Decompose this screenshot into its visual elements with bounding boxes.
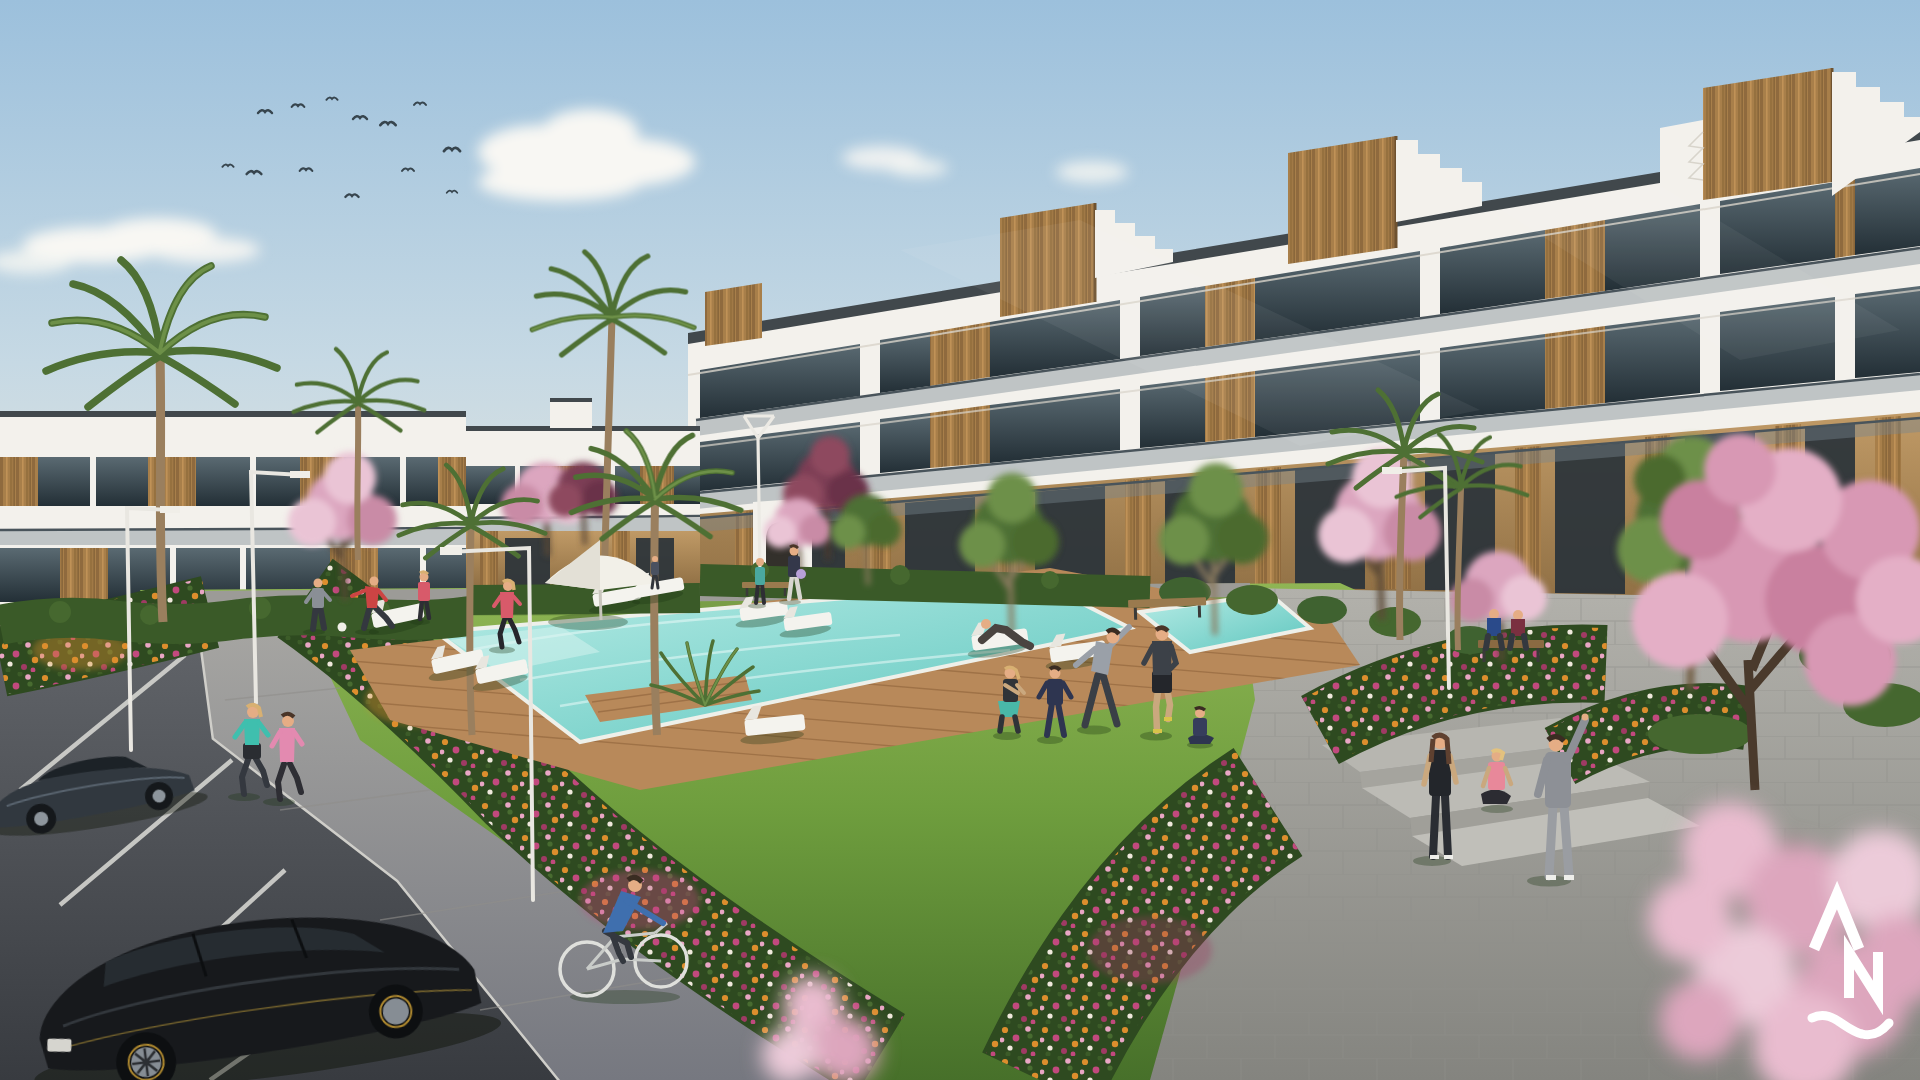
scene-canvas [0,0,1920,1080]
render-image [0,0,1920,1080]
roof-wood-box [705,283,762,346]
ball [338,623,347,632]
